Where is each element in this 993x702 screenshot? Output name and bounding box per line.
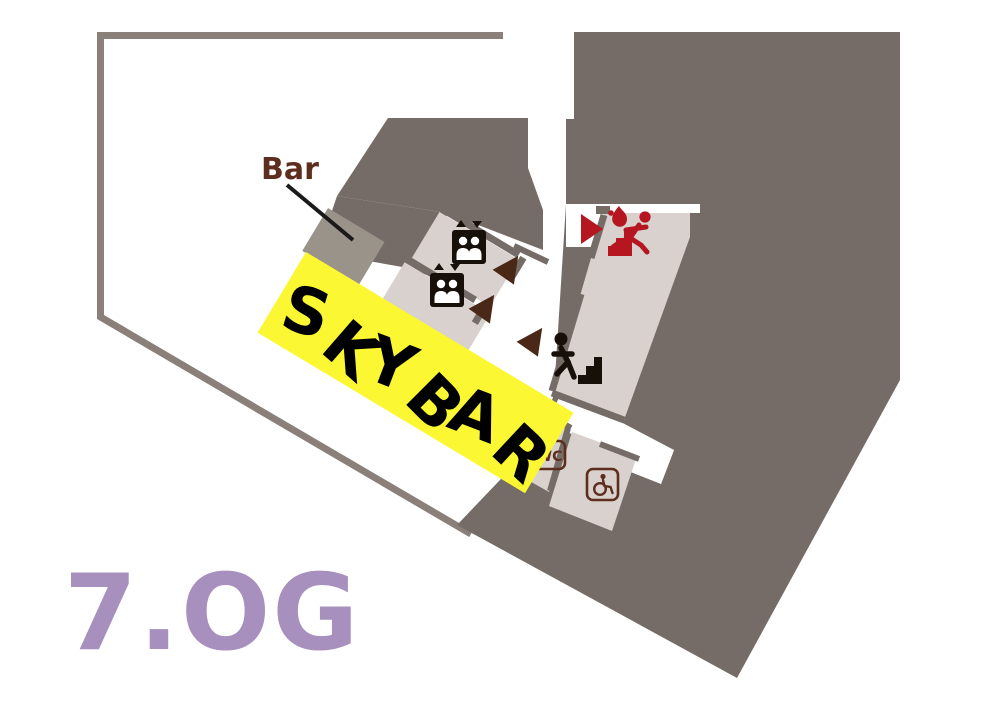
stairwell-wall-stub — [596, 206, 610, 214]
bar-label: Bar — [261, 152, 319, 187]
floor-title: 7.OG — [64, 552, 360, 674]
floor-plan-page: WC SKYBAR — [0, 0, 993, 702]
floor-plan-canvas: WC SKYBAR — [0, 0, 993, 702]
wheelchair-person-head — [600, 474, 605, 479]
